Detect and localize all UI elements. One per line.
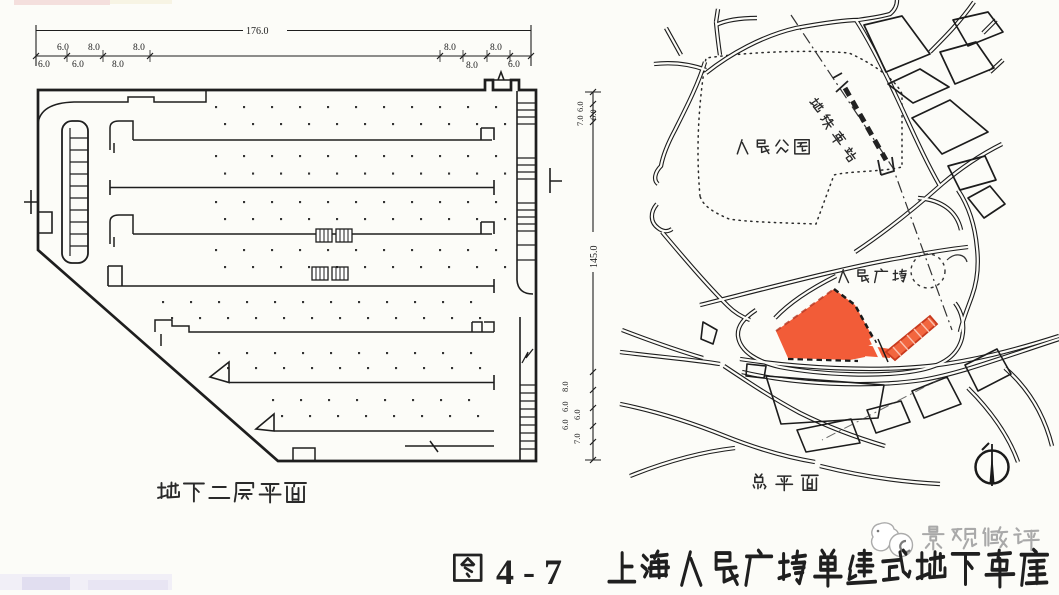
svg-text:8.0: 8.0 (444, 43, 456, 53)
svg-text:6.0: 6.0 (560, 419, 570, 430)
svg-text:6.0: 6.0 (588, 109, 598, 120)
svg-text:8.0: 8.0 (466, 61, 478, 71)
svg-text:8.0: 8.0 (112, 60, 124, 70)
svg-text:6.0: 6.0 (38, 60, 50, 70)
svg-text:8.0: 8.0 (133, 43, 145, 53)
svg-text:6.0: 6.0 (560, 401, 570, 412)
svg-text:7.0: 7.0 (572, 433, 582, 444)
svg-text:6.0: 6.0 (508, 60, 520, 70)
svg-text:7.0: 7.0 (575, 115, 585, 126)
svg-text:6.0: 6.0 (575, 101, 585, 112)
svg-text:8.0: 8.0 (560, 381, 570, 392)
svg-text:8.0: 8.0 (490, 43, 502, 53)
svg-text:145.0: 145.0 (589, 246, 600, 269)
svg-text:6.0: 6.0 (57, 43, 69, 53)
svg-text:6.0: 6.0 (572, 409, 582, 420)
svg-text:6.0: 6.0 (72, 60, 84, 70)
svg-text:176.0: 176.0 (246, 26, 269, 37)
svg-text:4 - 7: 4 - 7 (496, 552, 562, 590)
svg-text:8.0: 8.0 (88, 43, 100, 53)
